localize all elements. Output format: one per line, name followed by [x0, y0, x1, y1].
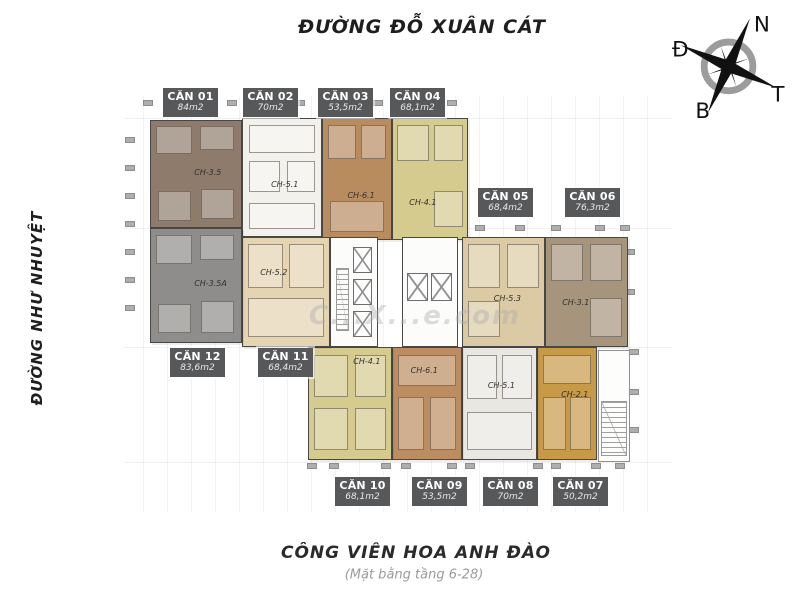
- floorplan-page: ĐƯỜNG ĐỖ XUÂN CÁT ĐƯỜNG NHƯ NHUYỆT N Đ T…: [0, 0, 798, 598]
- elevator-shaft: [431, 273, 452, 301]
- column-tick: [125, 165, 135, 171]
- room: [590, 298, 622, 337]
- room: [551, 244, 583, 281]
- room: [502, 355, 531, 399]
- column-tick: [401, 463, 411, 469]
- unit-area: 50,2m2: [553, 492, 608, 503]
- unit-code-label: CH-4.1: [353, 357, 380, 366]
- unit-label-05: CĂN 0568,4m2: [478, 188, 533, 217]
- unit-area: 68,1m2: [335, 492, 390, 503]
- room: [434, 125, 462, 161]
- unit-label-09: CĂN 0953,5m2: [412, 477, 467, 506]
- column-tick: [615, 463, 625, 469]
- column-tick: [125, 193, 135, 199]
- unit-code-label: CH-3.5A: [194, 279, 227, 288]
- unit-code-label: CH-4.1: [409, 198, 436, 207]
- column-tick: [595, 225, 605, 231]
- external-stair: [598, 350, 630, 462]
- room: [158, 304, 190, 333]
- floor-range-note: (Mặt bằng tầng 6-28): [345, 568, 484, 583]
- unit-label-10: CĂN 1068,1m2: [335, 477, 390, 506]
- unit-code-label: CH-5.2: [260, 268, 287, 277]
- unit-code-label: CH-3.1: [562, 298, 589, 307]
- unit-name: CĂN 03: [318, 90, 373, 103]
- unit-area: 84m2: [163, 103, 218, 114]
- unit-plan-01: CH-3.5: [150, 120, 242, 228]
- column-tick: [143, 100, 153, 106]
- floor-plan: CH-3.5CĂN 0184m2CH-5.1CĂN 0270m2CH-6.1CĂ…: [0, 0, 798, 598]
- unit-code-label: CH-5.1: [488, 381, 515, 390]
- unit-plan-12: CH-3.5A: [150, 228, 242, 343]
- unit-name: CĂN 04: [390, 90, 445, 103]
- unit-name: CĂN 05: [478, 190, 533, 203]
- column-tick: [533, 463, 543, 469]
- room: [430, 397, 456, 450]
- room: [590, 244, 622, 281]
- unit-label-08: CĂN 0870m2: [483, 477, 538, 506]
- unit-label-06: CĂN 0676,3m2: [565, 188, 620, 217]
- unit-plan-08: CH-5.1: [462, 347, 537, 460]
- room: [434, 191, 462, 227]
- park-label: CÔNG VIÊN HOA ANH ĐÀO: [281, 543, 551, 563]
- column-tick: [329, 463, 339, 469]
- column-tick: [629, 349, 639, 355]
- unit-plan-09: CH-6.1: [392, 347, 462, 460]
- room: [467, 412, 531, 450]
- unit-name: CĂN 11: [258, 350, 313, 363]
- room: [507, 244, 539, 287]
- unit-code-label: CH-3.5: [194, 168, 221, 177]
- unit-name: CĂN 08: [483, 479, 538, 492]
- column-tick: [125, 305, 135, 311]
- unit-code-label: CH-6.1: [411, 366, 438, 375]
- room: [314, 408, 348, 450]
- room: [289, 244, 323, 287]
- unit-area: 70m2: [483, 492, 538, 503]
- elevator-shaft: [407, 273, 428, 301]
- room: [330, 201, 384, 232]
- unit-name: CĂN 02: [243, 90, 298, 103]
- unit-label-04: CĂN 0468,1m2: [390, 88, 445, 117]
- room: [355, 408, 386, 450]
- unit-area: 76,3m2: [565, 203, 620, 214]
- unit-plan-07: CH-2.1: [537, 347, 597, 460]
- room: [200, 235, 234, 260]
- room: [570, 397, 591, 450]
- room: [361, 125, 385, 159]
- unit-area: 68,4m2: [478, 203, 533, 214]
- column-tick: [591, 463, 601, 469]
- room: [543, 397, 566, 450]
- unit-name: CĂN 10: [335, 479, 390, 492]
- grid-line-vertical: [647, 96, 648, 512]
- column-tick: [125, 221, 135, 227]
- column-tick: [125, 137, 135, 143]
- column-tick: [629, 389, 639, 395]
- room: [156, 235, 192, 264]
- room: [468, 244, 500, 287]
- unit-code-label: CH-5.1: [271, 180, 298, 189]
- column-tick: [475, 225, 485, 231]
- unit-plan-03: CH-6.1: [322, 118, 392, 240]
- column-tick: [125, 249, 135, 255]
- room: [314, 355, 348, 397]
- room: [200, 126, 234, 149]
- unit-name: CĂN 01: [163, 90, 218, 103]
- column-tick: [447, 100, 457, 106]
- column-tick: [373, 100, 383, 106]
- column-tick: [629, 427, 639, 433]
- watermark: C...X...e.com: [309, 301, 521, 331]
- unit-plan-10: CH-4.1: [308, 347, 392, 460]
- column-tick: [515, 225, 525, 231]
- unit-area: 68,4m2: [258, 363, 313, 374]
- stair-hatch: [601, 401, 626, 456]
- unit-area: 53,5m2: [412, 492, 467, 503]
- unit-plan-06: CH-3.1: [545, 237, 628, 347]
- elevator-shaft: [353, 247, 372, 273]
- unit-name: CĂN 06: [565, 190, 620, 203]
- column-tick: [447, 463, 457, 469]
- column-tick: [227, 100, 237, 106]
- room: [249, 203, 315, 229]
- unit-name: CĂN 09: [412, 479, 467, 492]
- grid-line-vertical: [143, 96, 144, 512]
- room: [158, 191, 190, 221]
- unit-name: CĂN 07: [553, 479, 608, 492]
- column-tick: [551, 463, 561, 469]
- room: [328, 125, 355, 159]
- room: [543, 355, 592, 384]
- column-tick: [551, 225, 561, 231]
- room: [201, 301, 233, 333]
- room: [248, 244, 282, 287]
- room: [201, 189, 233, 219]
- unit-area: 70m2: [243, 103, 298, 114]
- unit-label-02: CĂN 0270m2: [243, 88, 298, 117]
- unit-label-11: CĂN 1168,4m2: [258, 348, 313, 377]
- room: [156, 126, 192, 154]
- room: [249, 125, 315, 153]
- column-tick: [381, 463, 391, 469]
- room: [398, 397, 424, 450]
- unit-label-01: CĂN 0184m2: [163, 88, 218, 117]
- unit-area: 83,6m2: [170, 363, 225, 374]
- column-tick: [125, 277, 135, 283]
- column-tick: [465, 463, 475, 469]
- grid-line-horizontal: [124, 462, 672, 463]
- unit-area: 68,1m2: [390, 103, 445, 114]
- unit-name: CĂN 12: [170, 350, 225, 363]
- room: [397, 125, 428, 161]
- column-tick: [620, 225, 630, 231]
- unit-code-label: CH-6.1: [347, 191, 374, 200]
- unit-label-12: CĂN 1283,6m2: [170, 348, 225, 377]
- unit-plan-02: CH-5.1: [242, 118, 322, 237]
- unit-plan-04: CH-4.1: [392, 118, 468, 240]
- column-tick: [307, 463, 317, 469]
- unit-label-07: CĂN 0750,2m2: [553, 477, 608, 506]
- unit-area: 53,5m2: [318, 103, 373, 114]
- room: [467, 355, 496, 399]
- unit-code-label: CH-2.1: [561, 390, 588, 399]
- unit-label-03: CĂN 0353,5m2: [318, 88, 373, 117]
